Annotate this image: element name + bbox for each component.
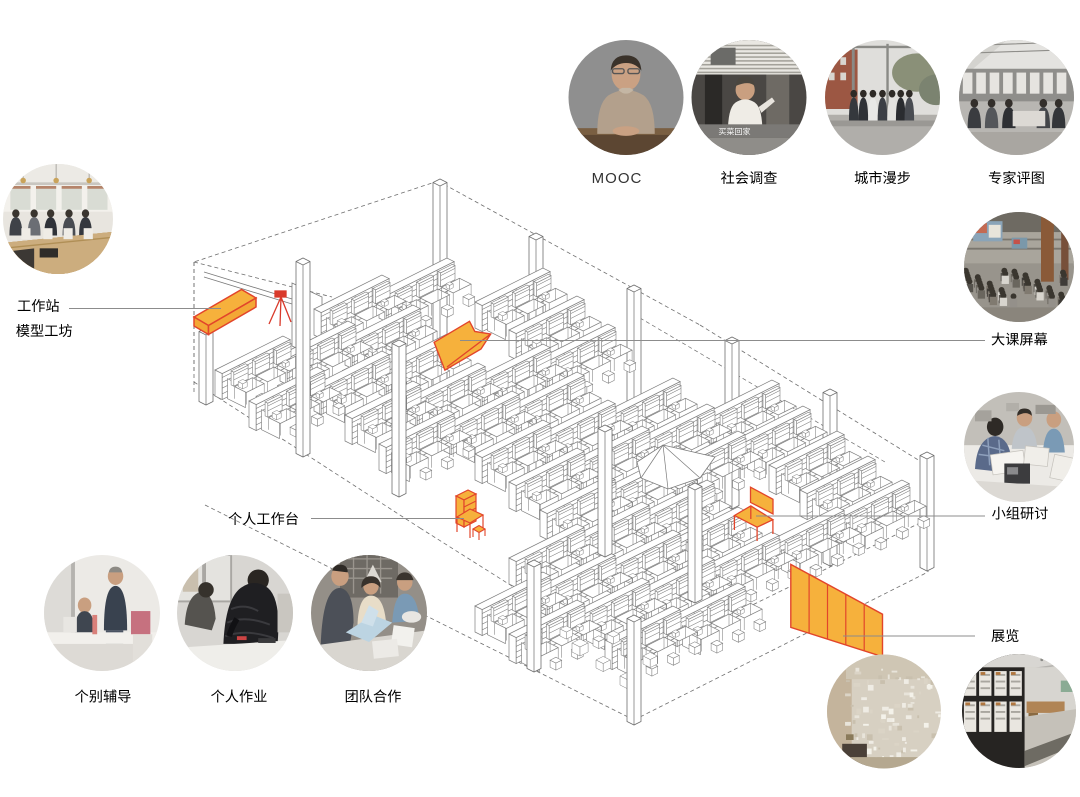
svg-text:MOOC: MOOC — [592, 170, 643, 187]
